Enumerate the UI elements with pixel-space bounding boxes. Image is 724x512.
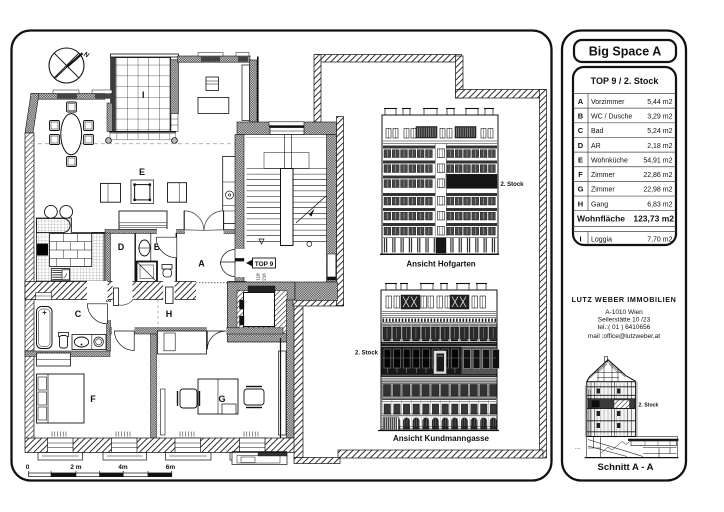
svg-text:5,24 m2: 5,24 m2 — [647, 128, 672, 135]
svg-text:0: 0 — [26, 464, 30, 471]
svg-text:3,29 m2: 3,29 m2 — [647, 113, 672, 120]
svg-text:C: C — [75, 309, 82, 319]
svg-text:Zimmer: Zimmer — [591, 172, 615, 179]
svg-text:A-1010 Wien: A-1010 Wien — [605, 309, 643, 316]
svg-text:6m: 6m — [166, 464, 176, 471]
svg-text:6,83 m2: 6,83 m2 — [647, 201, 672, 208]
svg-text:2,18 m2: 2,18 m2 — [647, 143, 672, 150]
svg-text:22,86 m2: 22,86 m2 — [643, 172, 672, 179]
svg-text:Loggia: Loggia — [591, 237, 612, 244]
svg-text:E: E — [578, 155, 583, 164]
svg-text:22,98 m2: 22,98 m2 — [643, 187, 672, 194]
svg-text:216: 216 — [262, 273, 267, 281]
svg-text:A: A — [578, 97, 584, 106]
svg-text:Gang: Gang — [591, 201, 608, 208]
svg-text:2 m: 2 m — [70, 464, 81, 471]
svg-text:Schnitt A - A: Schnitt A - A — [598, 462, 654, 473]
svg-text:Big Space A: Big Space A — [589, 45, 661, 59]
svg-text:118: 118 — [256, 273, 261, 281]
svg-text:LUTZ WEBER IMMOBILIEN: LUTZ WEBER IMMOBILIEN — [572, 295, 677, 304]
svg-text:Wohnküche: Wohnküche — [591, 157, 628, 164]
svg-text:2. Stock: 2. Stock — [501, 182, 525, 188]
svg-text:A: A — [198, 259, 205, 269]
svg-text:5,44 m2: 5,44 m2 — [647, 99, 672, 106]
svg-text:D: D — [578, 141, 584, 150]
svg-text:....: .... — [575, 445, 581, 451]
svg-text:H: H — [166, 309, 173, 319]
svg-text:AR: AR — [591, 143, 601, 150]
svg-text:4m: 4m — [118, 464, 128, 471]
svg-text:2. Stock: 2. Stock — [355, 351, 379, 357]
svg-text:2. Stock: 2. Stock — [639, 403, 659, 409]
svg-text:D: D — [118, 242, 125, 252]
svg-text:E: E — [139, 167, 145, 177]
svg-text:H: H — [578, 199, 583, 208]
svg-text:B: B — [578, 111, 584, 120]
svg-text:I: I — [142, 90, 145, 100]
svg-text:Vorzimmer: Vorzimmer — [591, 99, 625, 106]
svg-text:Ansicht Kundmanngasse: Ansicht Kundmanngasse — [393, 434, 490, 443]
svg-text:Zimmer: Zimmer — [591, 187, 615, 194]
svg-text:G: G — [218, 394, 225, 404]
svg-text:TOP 9 / 2. Stock: TOP 9 / 2. Stock — [591, 76, 660, 86]
svg-text:tel.:( 01 ) 6410656: tel.:( 01 ) 6410656 — [598, 324, 651, 331]
svg-text:7,70 m2: 7,70 m2 — [647, 237, 672, 244]
svg-text:Seilerstätte 10 /23: Seilerstätte 10 /23 — [598, 317, 651, 324]
svg-text:Ansicht Hofgarten: Ansicht Hofgarten — [406, 260, 475, 269]
svg-text:Bad: Bad — [591, 128, 604, 135]
svg-text:G: G — [578, 185, 584, 194]
svg-text:F: F — [578, 170, 583, 179]
svg-text:F: F — [90, 394, 96, 404]
svg-text:I: I — [579, 235, 581, 244]
svg-text:TOP 9: TOP 9 — [255, 261, 274, 268]
svg-text:mail :office@lutzweber.at: mail :office@lutzweber.at — [588, 333, 660, 340]
svg-text:WC / Dusche: WC / Dusche — [591, 113, 632, 120]
svg-text:123,73 m2: 123,73 m2 — [633, 214, 674, 224]
svg-text:54,91 m2: 54,91 m2 — [643, 157, 672, 164]
svg-text:Wohnfläche: Wohnfläche — [577, 214, 625, 224]
svg-text:C: C — [578, 126, 584, 135]
